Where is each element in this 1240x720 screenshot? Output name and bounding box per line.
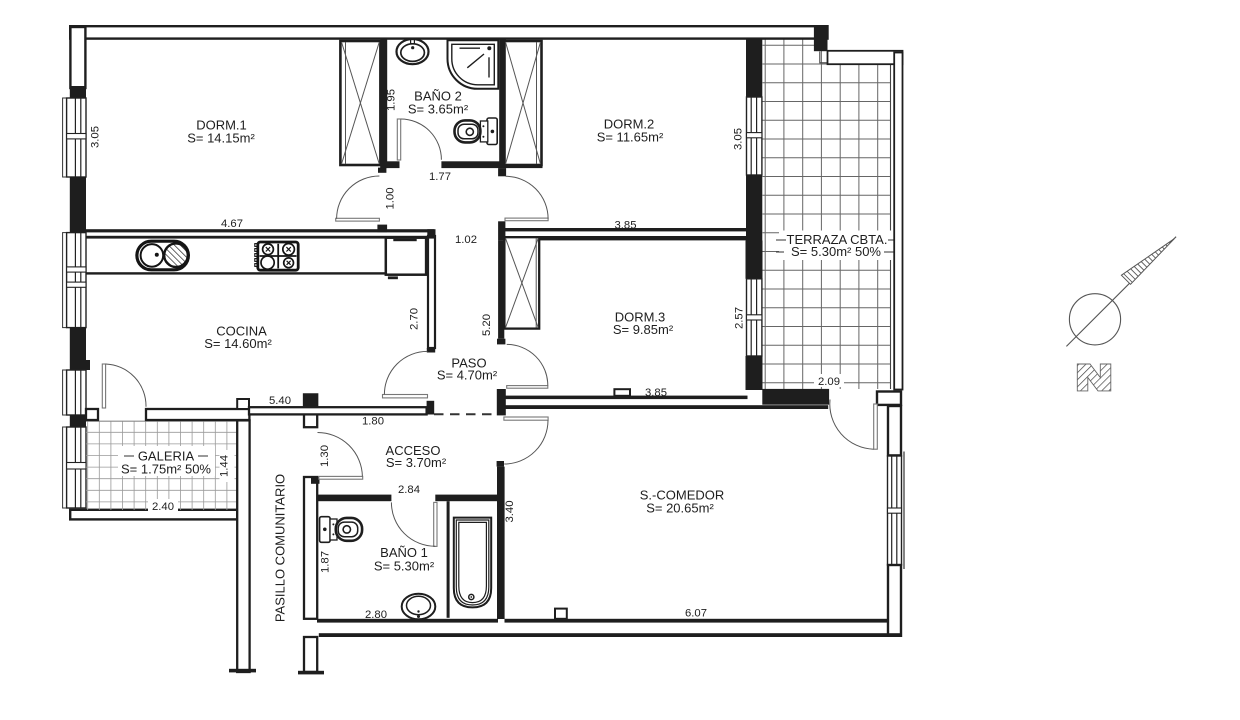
svg-text:5.20: 5.20 [481,314,493,336]
svg-text:2.57: 2.57 [734,307,746,329]
svg-text:S= 20.65m²: S= 20.65m² [646,501,714,516]
svg-text:1.87: 1.87 [320,551,332,573]
svg-text:1.44: 1.44 [219,455,231,477]
svg-text:1.80: 1.80 [362,416,384,428]
svg-text:3.05: 3.05 [90,126,102,148]
svg-text:S= 14.15m²: S= 14.15m² [187,131,255,146]
svg-text:1.95: 1.95 [386,89,398,111]
svg-text:S= 3.70m²: S= 3.70m² [386,455,447,470]
svg-text:S= 1.75m² 50%: S= 1.75m² 50% [121,462,211,477]
svg-text:S= 3.65m²: S= 3.65m² [408,102,469,117]
svg-text:S= 9.85m²: S= 9.85m² [613,322,674,337]
svg-text:2.70: 2.70 [409,308,421,330]
svg-text:S= 5.30m²: S= 5.30m² [374,559,435,574]
svg-text:6.07: 6.07 [685,608,707,620]
svg-text:1.02: 1.02 [455,234,477,246]
svg-text:PASILLO COMUNITARIO: PASILLO COMUNITARIO [273,474,288,622]
svg-text:2.84: 2.84 [398,484,420,496]
svg-text:3.05: 3.05 [733,128,745,150]
svg-text:3.85: 3.85 [615,220,637,232]
svg-text:S= 14.60m²: S= 14.60m² [204,336,272,351]
svg-text:1.00: 1.00 [385,188,397,210]
svg-text:2.09: 2.09 [818,376,840,388]
svg-text:S= 5.30m² 50%: S= 5.30m² 50% [791,244,881,259]
svg-text:2.80: 2.80 [365,609,387,621]
svg-text:5.40: 5.40 [269,395,291,407]
svg-text:1.77: 1.77 [429,171,451,183]
svg-text:S= 4.70m²: S= 4.70m² [437,368,498,383]
svg-text:1.30: 1.30 [319,445,331,467]
svg-text:4.67: 4.67 [221,218,243,230]
svg-text:3.40: 3.40 [504,501,516,523]
svg-text:3.85: 3.85 [645,387,667,399]
svg-text:2.40: 2.40 [152,501,174,513]
svg-text:S= 11.65m²: S= 11.65m² [597,130,664,145]
